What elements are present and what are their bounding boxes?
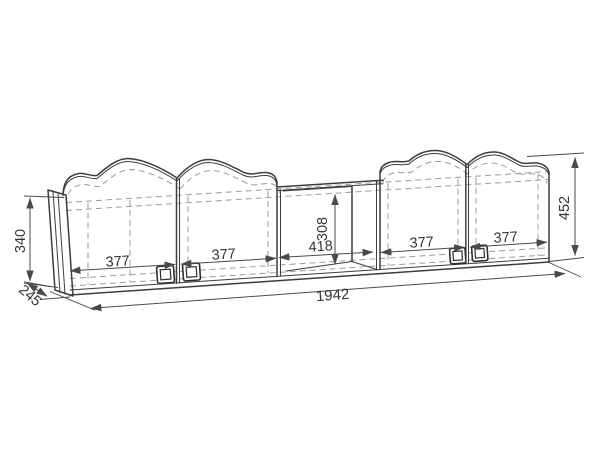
dim-label-total-width: 1942 [315, 286, 350, 305]
ext-line-total-width-right [549, 263, 581, 278]
dim-label-door1-width: 377 [105, 253, 130, 270]
dim-label-door2-width: 377 [211, 246, 236, 263]
ext-line-right-height-bottom [549, 258, 584, 262]
handle-outer [182, 263, 200, 281]
door1-top-curve-inner [63, 162, 177, 197]
hidden-door1-top-curve [66, 170, 180, 205]
dim-label-left-height: 340 [13, 229, 29, 253]
dim-label-door4-width: 377 [493, 229, 518, 246]
opening-floor-back-edge [286, 262, 352, 272]
door4-handle [471, 245, 488, 262]
opening-floor-right-edge [352, 262, 377, 270]
hidden-top-shelf-line [66, 172, 549, 203]
dim-label-door3-width: 377 [409, 234, 434, 251]
opening-ceiling-back-edge [283, 187, 352, 192]
door2-top-curve [177, 160, 277, 183]
door4-top-curve [467, 152, 549, 173]
handle-outer [449, 247, 466, 264]
dim-label-opening-height: 308 [315, 217, 331, 241]
side-panel-left [48, 190, 73, 296]
ext-line-right-height-top [527, 153, 584, 157]
door3-top-curve [380, 150, 467, 172]
hidden-door2-top-curve [180, 171, 280, 194]
opening-top-rail-inner [277, 184, 383, 191]
dim-label-right-height: 452 [557, 196, 573, 220]
handle-outer [471, 245, 488, 262]
technical-drawing-canvas: 377 377 418 308 377 377 1942 340 245 452 [0, 0, 600, 452]
door3-handle [449, 247, 466, 264]
furniture-dimension-drawing: 377 377 418 308 377 377 1942 340 245 452 [0, 0, 600, 452]
door2-handle [182, 263, 200, 281]
dim-label-depth: 245 [15, 282, 44, 310]
door1-top-curve [63, 159, 177, 194]
cabinet-outline [48, 150, 549, 296]
hidden-top-shelf-line [66, 180, 549, 211]
handle-outer [156, 265, 174, 283]
door1-handle [156, 265, 174, 283]
